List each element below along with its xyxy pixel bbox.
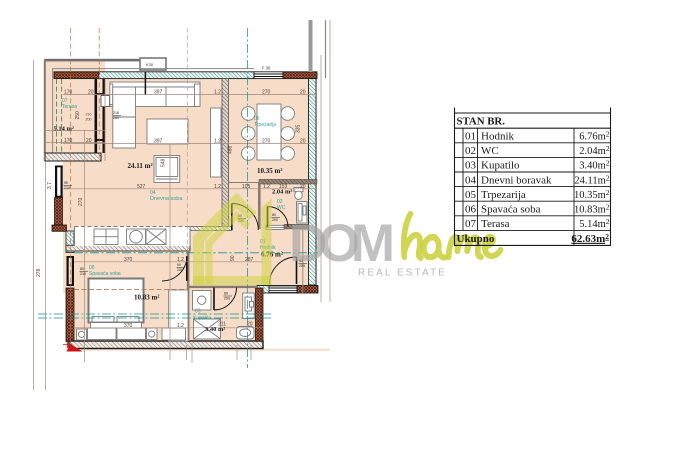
svg-text:200: 200 — [224, 297, 230, 301]
svg-text:210: 210 — [64, 186, 70, 190]
svg-text:Hodnik: Hodnik — [481, 131, 515, 143]
svg-text:488: 488 — [228, 145, 234, 154]
svg-text:3.40m2: 3.40m2 — [579, 159, 610, 172]
svg-text:548: 548 — [161, 158, 167, 167]
svg-text:1.2: 1.2 — [177, 323, 184, 329]
svg-text:527: 527 — [137, 184, 146, 190]
svg-text:105: 105 — [242, 184, 251, 190]
svg-text:Dnevni boravak: Dnevni boravak — [481, 174, 552, 186]
svg-text:90: 90 — [64, 181, 68, 185]
svg-text:05: 05 — [465, 189, 477, 201]
svg-text:200: 200 — [272, 218, 278, 222]
svg-text:10.83m2: 10.83m2 — [574, 203, 610, 216]
svg-text:370: 370 — [124, 257, 133, 263]
svg-text:170: 170 — [64, 138, 73, 144]
svg-text:397: 397 — [154, 139, 163, 145]
svg-text:1.2: 1.2 — [214, 89, 221, 95]
svg-text:F 30: F 30 — [262, 66, 271, 71]
svg-text:1.2: 1.2 — [263, 184, 270, 190]
svg-text:278: 278 — [36, 268, 42, 277]
svg-text:24.11 m²: 24.11 m² — [128, 162, 153, 170]
svg-text:2.04 m²: 2.04 m² — [272, 189, 292, 196]
svg-text:5.14 m²: 5.14 m² — [54, 126, 74, 133]
svg-text:335: 335 — [296, 124, 302, 133]
svg-text:62.63m2: 62.63m2 — [571, 232, 609, 245]
svg-text:02: 02 — [465, 145, 476, 157]
svg-text:270: 270 — [262, 139, 271, 145]
svg-text:287: 287 — [245, 257, 254, 263]
svg-text:260: 260 — [113, 116, 119, 120]
svg-text:WC: WC — [277, 205, 286, 211]
svg-text:STAN BR.: STAN BR. — [457, 116, 506, 128]
svg-text:10.35m2: 10.35m2 — [574, 188, 610, 201]
svg-text:20: 20 — [247, 322, 253, 328]
svg-text:20: 20 — [300, 139, 306, 145]
svg-text:24.11m2: 24.11m2 — [574, 173, 609, 186]
svg-text:03: 03 — [465, 160, 477, 172]
svg-text:80: 80 — [272, 213, 276, 217]
svg-text:3.7: 3.7 — [47, 182, 53, 189]
svg-text:90: 90 — [177, 263, 181, 267]
svg-text:Kupatilo: Kupatilo — [481, 160, 520, 172]
svg-text:3.40 m²: 3.40 m² — [205, 326, 225, 333]
svg-text:Terasa: Terasa — [481, 218, 510, 230]
svg-text:170: 170 — [64, 89, 73, 95]
svg-text:270: 270 — [262, 89, 271, 95]
svg-text:270: 270 — [78, 197, 84, 206]
svg-text:Spavaća soba: Spavaća soba — [481, 204, 541, 216]
svg-text:210: 210 — [80, 272, 86, 276]
svg-text:01: 01 — [465, 131, 476, 143]
svg-text:20: 20 — [300, 89, 306, 95]
svg-text:370: 370 — [124, 323, 133, 329]
svg-text:10.35 m²: 10.35 m² — [257, 167, 282, 175]
svg-text:WC: WC — [481, 145, 499, 157]
svg-text:210: 210 — [86, 113, 92, 117]
svg-text:Trpezarija: Trpezarija — [254, 122, 276, 128]
svg-text:REAL ESTATE: REAL ESTATE — [358, 268, 447, 279]
svg-text:80: 80 — [80, 267, 84, 271]
svg-text:60: 60 — [224, 292, 228, 296]
svg-text:90: 90 — [230, 255, 236, 261]
svg-text:20: 20 — [86, 138, 92, 144]
svg-text:DOM: DOM — [289, 214, 395, 273]
svg-text:Ukupno: Ukupno — [457, 233, 495, 245]
svg-text:Terasa: Terasa — [62, 104, 77, 110]
svg-text:04: 04 — [465, 174, 477, 186]
svg-text:218: 218 — [113, 111, 119, 115]
svg-text:10.83 m²: 10.83 m² — [134, 293, 159, 301]
svg-text:06: 06 — [465, 204, 477, 216]
svg-text:20: 20 — [300, 184, 306, 190]
svg-text:2.04m2: 2.04m2 — [579, 144, 610, 157]
svg-text:20: 20 — [88, 89, 94, 95]
svg-text:200: 200 — [86, 118, 92, 122]
svg-text:K30: K30 — [146, 62, 154, 67]
svg-text:07: 07 — [465, 218, 477, 230]
svg-text:Dnevna soba: Dnevna soba — [150, 196, 183, 202]
svg-text:1.2: 1.2 — [214, 184, 221, 190]
svg-text:200: 200 — [177, 268, 183, 272]
svg-text:Spavaća soba: Spavaća soba — [89, 271, 121, 277]
svg-text:03: 03 — [195, 309, 201, 315]
svg-text:6.76m2: 6.76m2 — [579, 130, 610, 143]
svg-text:1.2: 1.2 — [214, 139, 221, 145]
svg-text:Kupatilo: Kupatilo — [193, 316, 211, 322]
svg-text:Trpezarija: Trpezarija — [481, 189, 526, 201]
svg-text:250: 250 — [75, 111, 81, 120]
svg-text:5.14m2: 5.14m2 — [579, 217, 610, 230]
svg-text:1.2: 1.2 — [177, 257, 184, 263]
svg-text:397: 397 — [154, 89, 163, 95]
